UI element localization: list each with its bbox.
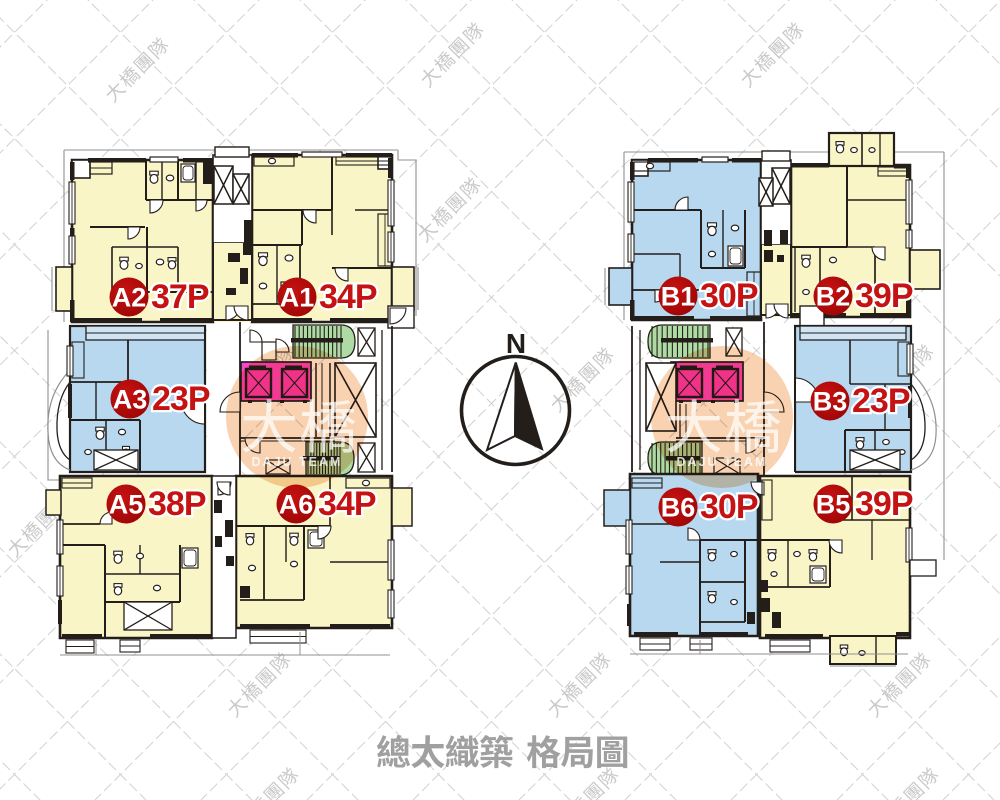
svg-text:34P: 34P <box>319 278 377 316</box>
svg-text:A6: A6 <box>279 490 314 520</box>
svg-text:DAJU TEAM: DAJU TEAM <box>252 455 343 469</box>
svg-text:30P: 30P <box>700 277 758 315</box>
svg-text:A1: A1 <box>280 283 315 313</box>
svg-text:B5: B5 <box>816 490 851 520</box>
svg-text:30P: 30P <box>700 488 758 526</box>
svg-text:38P: 38P <box>148 485 206 523</box>
svg-text:23P: 23P <box>852 382 910 420</box>
svg-text:B6: B6 <box>661 493 696 523</box>
svg-text:DAJU TEAM: DAJU TEAM <box>677 455 768 469</box>
svg-text:B2: B2 <box>816 282 851 312</box>
svg-text:A5: A5 <box>109 490 144 520</box>
svg-text:23P: 23P <box>152 380 210 418</box>
svg-text:A3: A3 <box>113 385 148 415</box>
svg-text:34P: 34P <box>318 485 376 523</box>
svg-text:39P: 39P <box>855 277 913 315</box>
svg-text:N: N <box>506 328 526 359</box>
svg-text:37P: 37P <box>151 278 209 316</box>
svg-text:B3: B3 <box>813 387 848 417</box>
svg-text:A2: A2 <box>112 283 147 313</box>
svg-text:39P: 39P <box>855 485 913 523</box>
svg-text:B1: B1 <box>661 282 696 312</box>
